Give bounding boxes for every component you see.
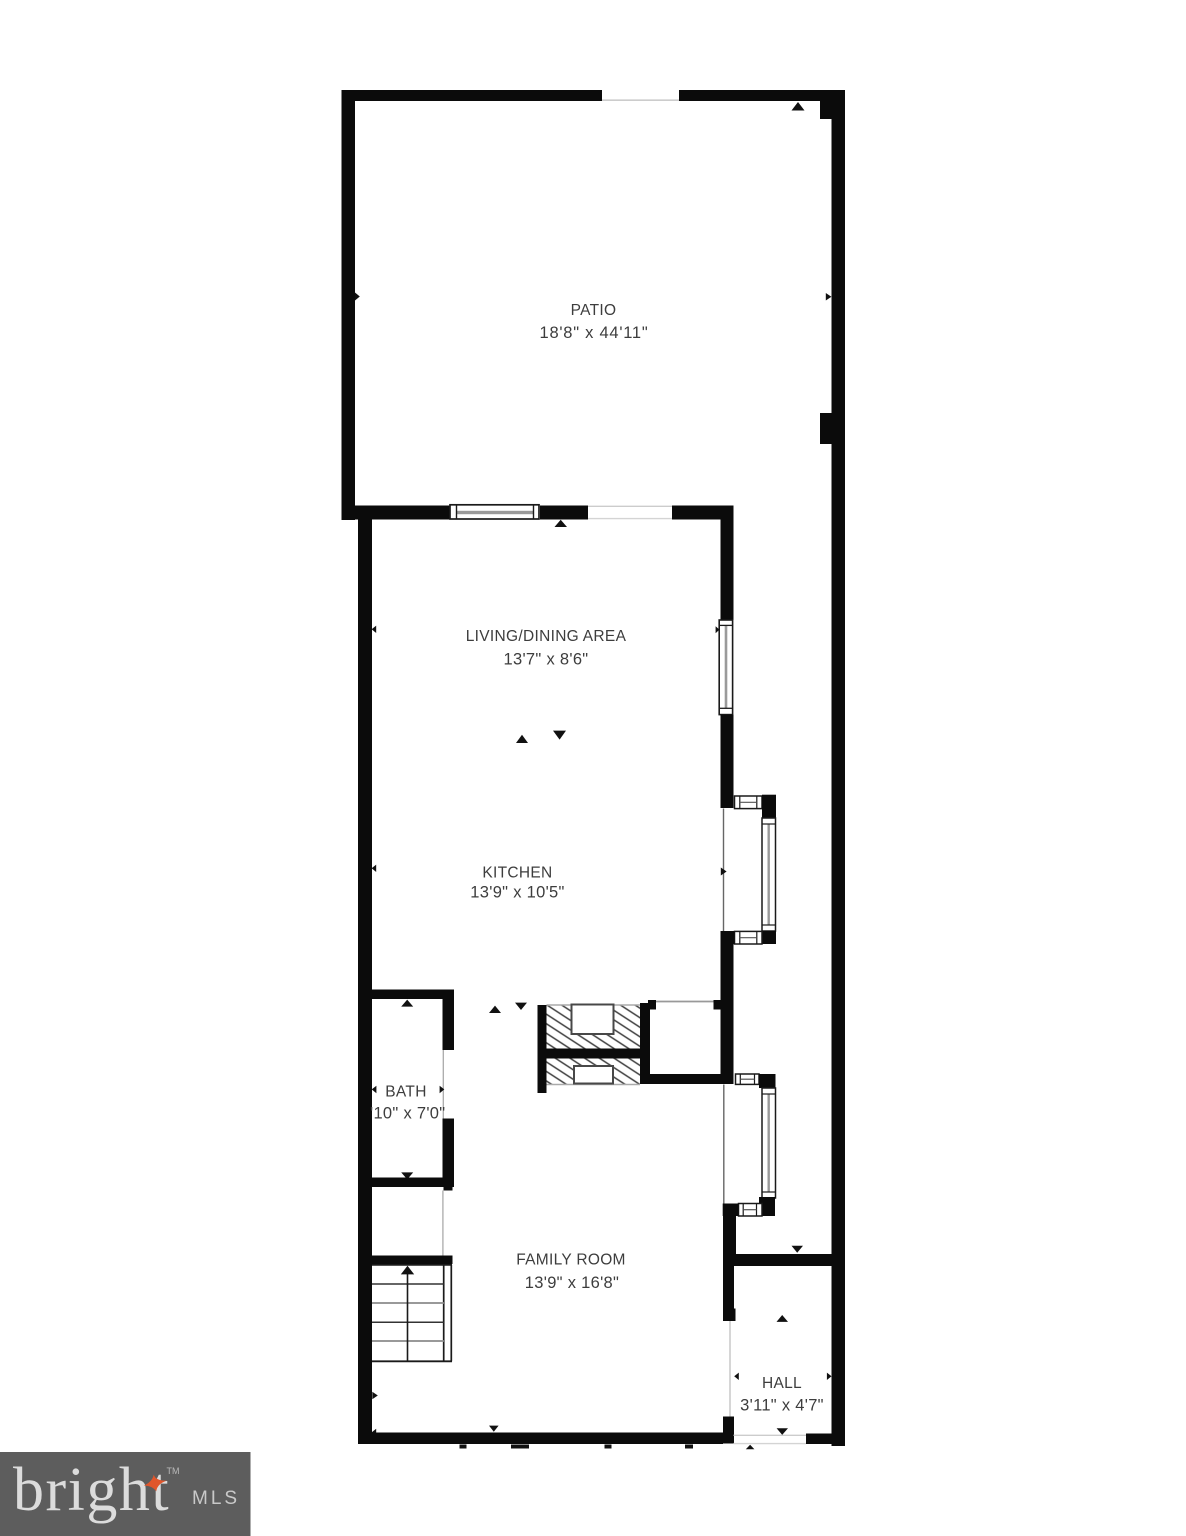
svg-text:KITCHEN: KITCHEN (482, 865, 552, 882)
svg-text:bright: bright (13, 1456, 170, 1524)
svg-text:PATIO: PATIO (571, 302, 617, 319)
svg-text:FAMILY ROOM: FAMILY ROOM (516, 1252, 626, 1269)
svg-text:BATH: BATH (385, 1084, 426, 1101)
svg-text:LIVING/DINING AREA: LIVING/DINING AREA (466, 628, 627, 645)
svg-text:18'8" x 44'11": 18'8" x 44'11" (540, 324, 649, 342)
svg-text:13'7" x 8'6": 13'7" x 8'6" (504, 651, 589, 669)
svg-text:13'9" x 16'8": 13'9" x 16'8" (525, 1274, 619, 1292)
svg-text:HALL: HALL (762, 1375, 802, 1392)
svg-text:3'11" x 4'7": 3'11" x 4'7" (740, 1397, 824, 1415)
svg-text:MLS: MLS (192, 1488, 240, 1509)
svg-text:13'9" x 10'5": 13'9" x 10'5" (470, 884, 564, 902)
svg-text:'10" x 7'0": '10" x 7'0" (370, 1105, 445, 1123)
svg-text:TM: TM (167, 1466, 180, 1476)
